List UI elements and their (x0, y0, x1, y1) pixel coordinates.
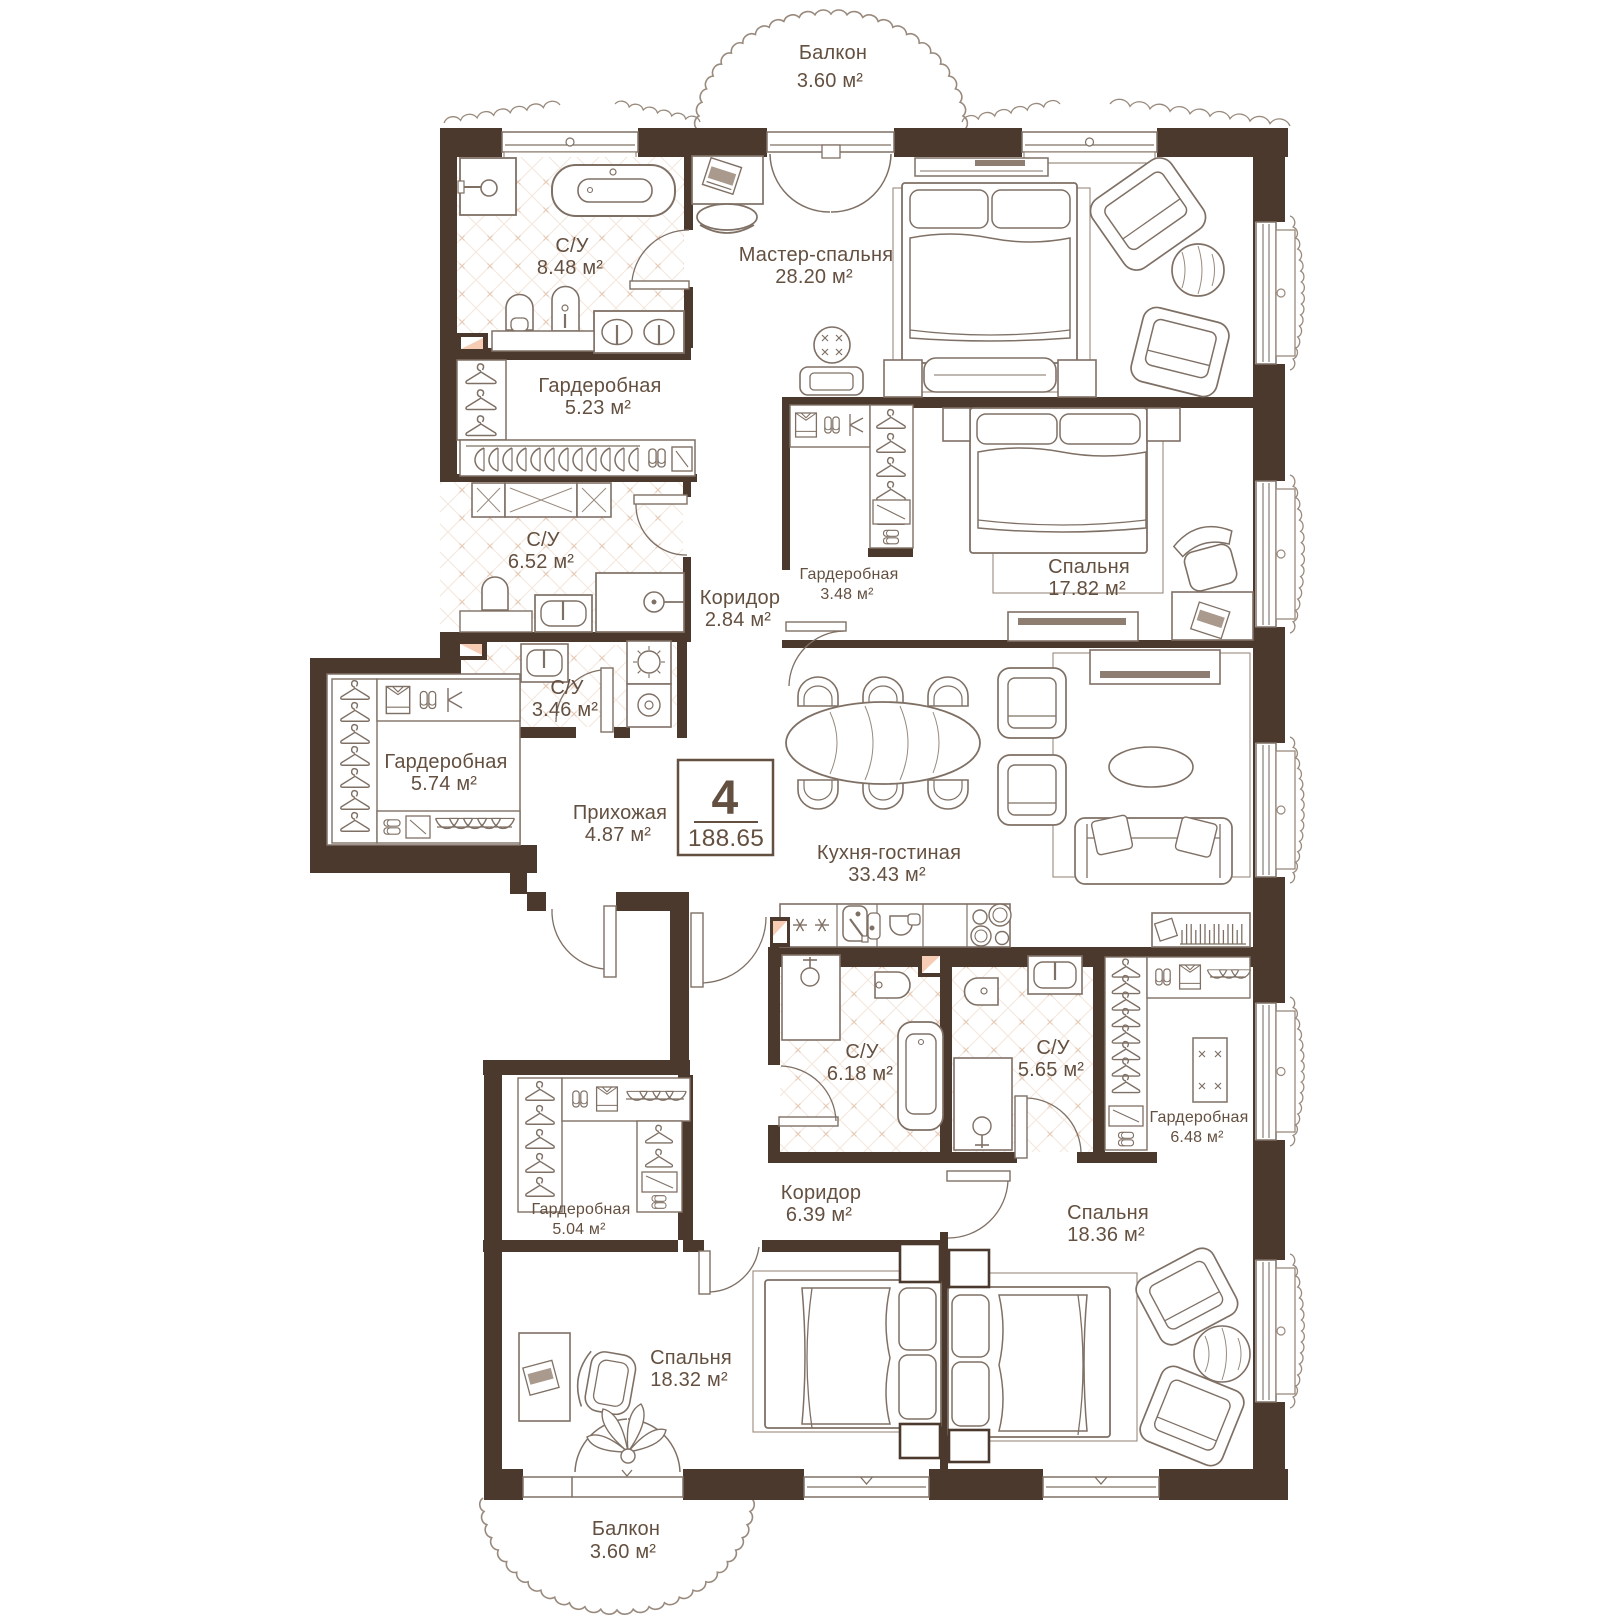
svg-text:С/У: С/У (526, 529, 559, 551)
svg-text:Коридор: Коридор (700, 587, 780, 609)
svg-text:6.48 м²: 6.48 м² (1170, 1129, 1224, 1146)
svg-text:18.32 м²: 18.32 м² (650, 1369, 728, 1391)
svg-text:Мастер-спальня: Мастер-спальня (739, 244, 894, 266)
svg-text:Гардеробная: Гардеробная (538, 375, 661, 397)
svg-text:С/У: С/У (550, 677, 583, 699)
svg-text:Балкон: Балкон (799, 42, 867, 64)
svg-text:3.60 м²: 3.60 м² (590, 1541, 656, 1563)
svg-text:6.18 м²: 6.18 м² (827, 1063, 893, 1085)
svg-text:33.43 м²: 33.43 м² (848, 864, 926, 886)
svg-text:Кухня-гостиная: Кухня-гостиная (817, 842, 961, 864)
svg-text:Прихожая: Прихожая (573, 802, 667, 824)
svg-text:Гардеробная: Гардеробная (384, 751, 507, 773)
svg-text:2.84 м²: 2.84 м² (705, 609, 771, 631)
svg-text:5.65 м²: 5.65 м² (1018, 1059, 1084, 1081)
svg-text:3.48 м²: 3.48 м² (820, 586, 874, 603)
svg-text:28.20 м²: 28.20 м² (775, 266, 853, 288)
svg-text:6.39 м²: 6.39 м² (786, 1204, 852, 1226)
svg-text:С/У: С/У (845, 1041, 878, 1063)
svg-text:17.82 м²: 17.82 м² (1048, 578, 1126, 600)
svg-text:Гардеробная: Гардеробная (1150, 1109, 1249, 1126)
svg-text:18.36 м²: 18.36 м² (1067, 1224, 1145, 1246)
svg-text:5.23 м²: 5.23 м² (565, 397, 631, 419)
svg-text:4: 4 (712, 772, 739, 825)
svg-text:3.46 м²: 3.46 м² (532, 699, 598, 721)
svg-text:С/У: С/У (1036, 1037, 1069, 1059)
svg-text:8.48 м²: 8.48 м² (537, 257, 603, 279)
svg-text:Спальня: Спальня (650, 1347, 732, 1369)
svg-text:Коридор: Коридор (781, 1182, 861, 1204)
svg-text:Спальня: Спальня (1048, 556, 1130, 578)
svg-text:5.74 м²: 5.74 м² (411, 773, 477, 795)
svg-text:Спальня: Спальня (1067, 1202, 1149, 1224)
svg-text:3.60 м²: 3.60 м² (797, 70, 863, 92)
svg-text:5.04 м²: 5.04 м² (552, 1221, 606, 1238)
svg-text:188.65: 188.65 (688, 825, 764, 852)
svg-text:Гардеробная: Гардеробная (532, 1201, 631, 1218)
svg-text:4.87 м²: 4.87 м² (585, 824, 651, 846)
svg-text:6.52 м²: 6.52 м² (508, 551, 574, 573)
svg-text:Балкон: Балкон (592, 1518, 660, 1540)
svg-text:Гардеробная: Гардеробная (800, 566, 899, 583)
svg-text:С/У: С/У (555, 235, 588, 257)
